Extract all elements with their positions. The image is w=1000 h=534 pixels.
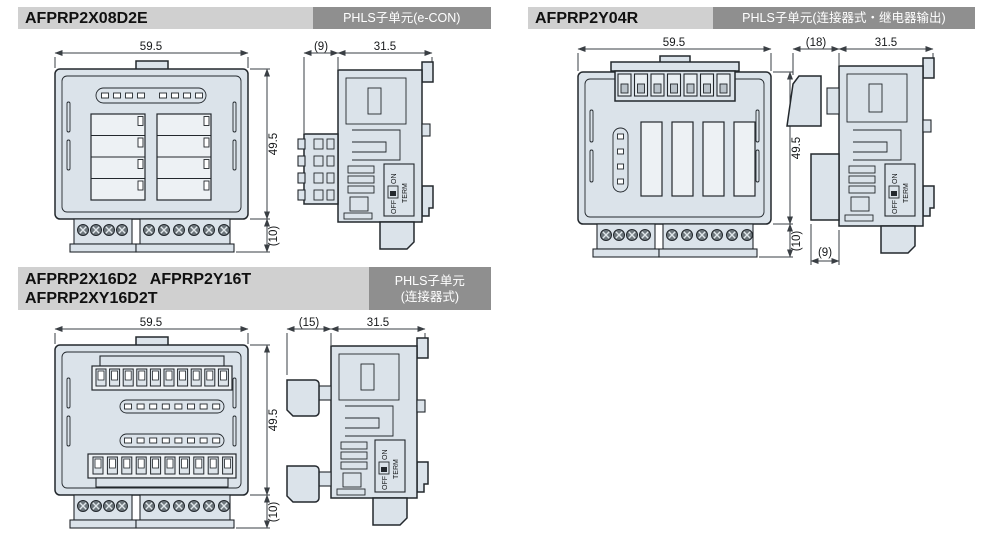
- connector-protrusion-lower: [287, 466, 331, 502]
- terminal-block-protrusion: [787, 76, 839, 126]
- badge-text: PHLS子单元(连接器式・继电器输出): [742, 10, 945, 26]
- badge-text-line2: (连接器式): [401, 289, 459, 305]
- section1-header: AFPRP2X08D2E PHLS子单元(e-CON): [18, 7, 491, 29]
- din-rail-notch: [417, 400, 425, 412]
- din-rail-hook-bottom: [923, 186, 934, 216]
- dim-width-label: 59.5: [140, 41, 162, 53]
- badge-text: PHLS子单元(e-CON): [343, 10, 460, 26]
- dim-depth-label: (15): [299, 317, 320, 329]
- model-number-line2: AFPRP2XY16D2T: [25, 289, 369, 308]
- front-view-afprp2x08d2e: 59.5 49.5 (10): [30, 40, 280, 258]
- section1-badge: PHLS子单元(e-CON): [313, 7, 491, 29]
- dim-width-label: 31.5: [875, 37, 897, 49]
- dim-width-label: 59.5: [663, 37, 685, 49]
- module-side-body: [338, 70, 422, 222]
- module-side-body: [839, 66, 923, 226]
- connector-protrusion-upper: [287, 380, 331, 416]
- dim-depth-label: (9): [314, 41, 328, 53]
- terminal-screws: [70, 495, 234, 528]
- side-view-afprp2x16d2: (15) 31.5: [275, 316, 455, 534]
- front-view-afprp2x16d2: 59.5 49.5 (10): [30, 316, 280, 534]
- dim-width-label: 31.5: [374, 41, 396, 53]
- terminal-screws: [70, 219, 234, 252]
- front-view-afprp2y04r: 59.5 49.5 (10): [553, 36, 803, 264]
- section1-title: AFPRP2X08D2E: [18, 7, 313, 29]
- top-connector-row: [92, 356, 232, 390]
- dim-width-label: 59.5: [140, 317, 162, 329]
- side-view-afprp2x08d2e: (9) 31.5: [290, 40, 455, 258]
- section3-title: AFPRP2X16D2 AFPRP2Y16T AFPRP2XY16D2T: [18, 267, 369, 310]
- din-latch: [881, 226, 915, 253]
- din-rail-tab-top: [417, 338, 428, 358]
- model-number: AFPRP2X08D2E: [25, 9, 313, 28]
- section3-header: AFPRP2X16D2 AFPRP2Y16T AFPRP2XY16D2T PHL…: [18, 267, 491, 310]
- din-rail-tab-top: [422, 62, 433, 82]
- din-rail-hook-bottom: [417, 462, 428, 492]
- dim-bottom-label: (10): [268, 226, 280, 247]
- din-rail-hook-bottom: [422, 186, 433, 216]
- side-view-afprp2y04r: (18) 31.5 (9): [787, 36, 959, 268]
- din-rail-notch: [923, 120, 931, 132]
- module-body: [55, 69, 248, 219]
- model-number: AFPRP2Y04R: [535, 9, 713, 28]
- top-terminal-block: [611, 62, 739, 101]
- section3-badge: PHLS子单元 (连接器式): [369, 267, 491, 310]
- terminal-screws: [593, 224, 757, 257]
- model-number-line1: AFPRP2X16D2 AFPRP2Y16T: [25, 270, 369, 289]
- din-latch: [373, 498, 407, 525]
- connector-protrusion: [811, 154, 839, 220]
- dim-height-label: 49.5: [268, 133, 280, 155]
- din-rail-notch: [422, 124, 430, 136]
- dim-width-label: 31.5: [367, 317, 389, 329]
- section2-title: AFPRP2Y04R: [528, 7, 713, 29]
- din-rail-tab-top: [923, 58, 934, 78]
- badge-text-line1: PHLS子单元: [395, 273, 465, 289]
- dim-bottom-label: (9): [818, 247, 832, 259]
- econ-connector-protrusion: [298, 134, 338, 204]
- section2-header: AFPRP2Y04R PHLS子单元(连接器式・继电器输出): [528, 7, 975, 29]
- bottom-connector-row: [88, 454, 236, 487]
- din-latch: [380, 222, 414, 249]
- section2-badge: PHLS子单元(连接器式・继电器输出): [713, 7, 975, 29]
- dim-depth-label: (18): [806, 37, 827, 49]
